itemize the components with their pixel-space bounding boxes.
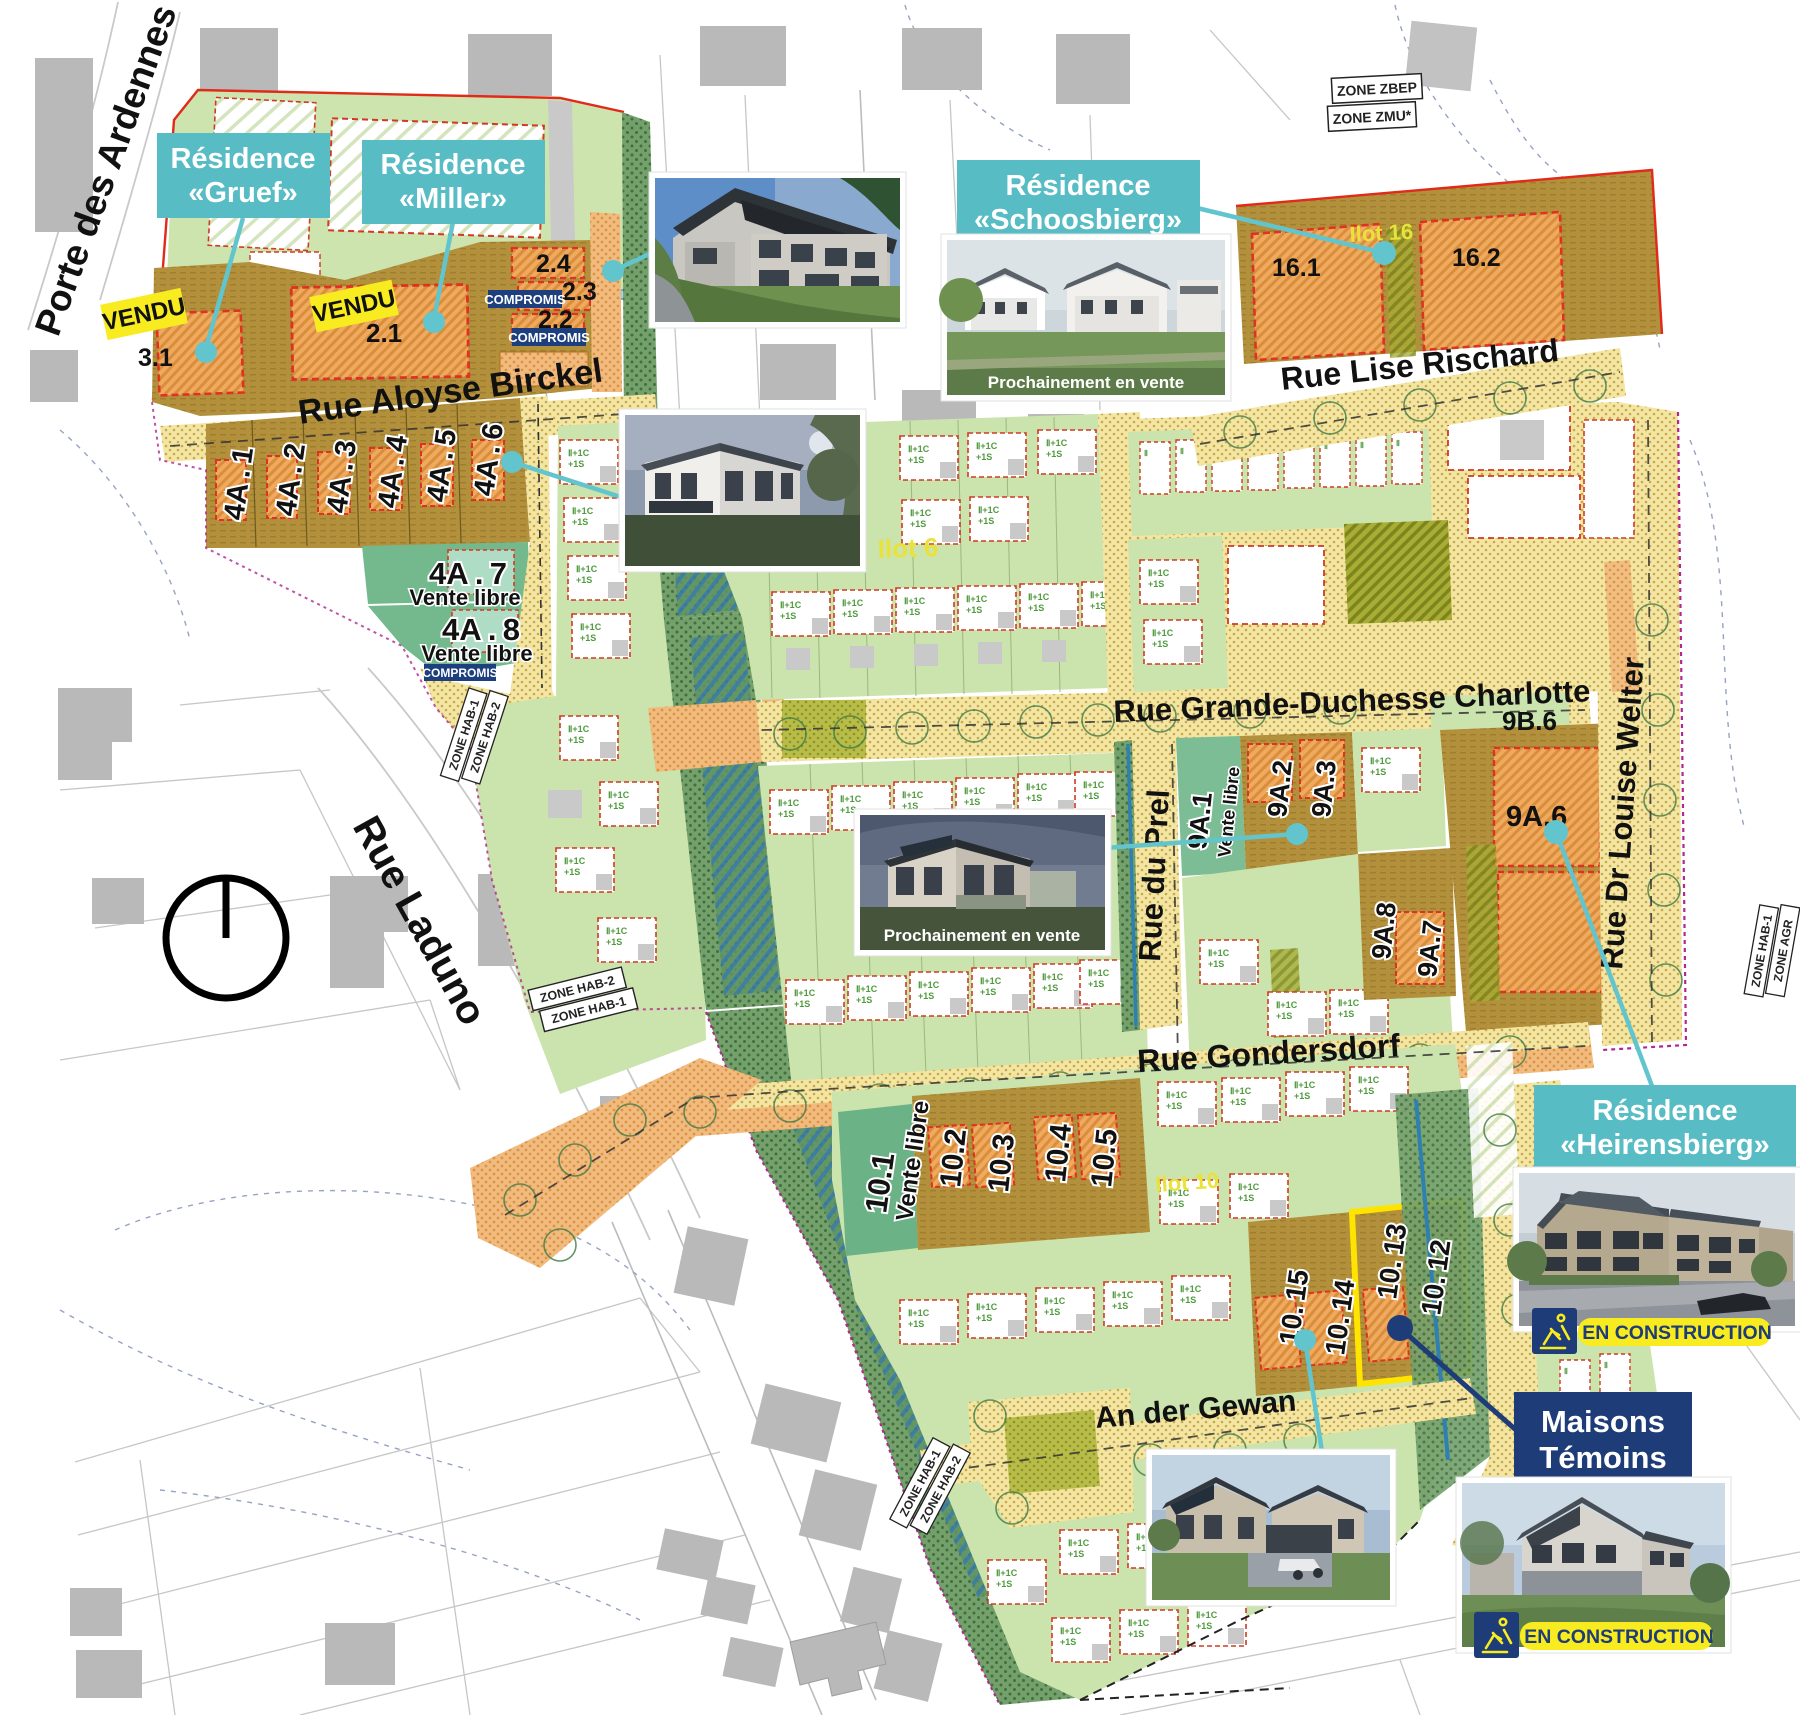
- svg-text:9A.8: 9A.8: [1366, 901, 1402, 961]
- svg-text:«Heirensbierg»: «Heirensbierg»: [1560, 1129, 1770, 1161]
- svg-text:10.5: 10.5: [1085, 1127, 1124, 1189]
- svg-text:«Miller»: «Miller»: [399, 183, 507, 215]
- svg-text:9A.7: 9A.7: [1412, 919, 1448, 979]
- svg-text:EN CONSTRUCTION: EN CONSTRUCTION: [1582, 1322, 1772, 1344]
- svg-text:3.1: 3.1: [138, 344, 173, 372]
- svg-text:9A.3: 9A.3: [1306, 759, 1342, 819]
- svg-text:9A.2: 9A.2: [1262, 759, 1298, 819]
- svg-text:Vente libre: Vente libre: [409, 585, 520, 610]
- svg-text:Résidence: Résidence: [1592, 1095, 1737, 1127]
- svg-text:COMPROMIS: COMPROMIS: [508, 330, 590, 345]
- svg-text:EN CONSTRUCTION: EN CONSTRUCTION: [1524, 1626, 1714, 1648]
- svg-text:16.1: 16.1: [1272, 254, 1321, 282]
- svg-text:Résidence: Résidence: [1005, 170, 1150, 202]
- svg-text:Prochainement en vente: Prochainement en vente: [884, 926, 1081, 945]
- svg-text:Témoins: Témoins: [1539, 1440, 1666, 1475]
- svg-text:Résidence: Résidence: [380, 149, 525, 181]
- svg-text:COMPROMIS: COMPROMIS: [422, 666, 497, 680]
- svg-text:«Schoosbierg»: «Schoosbierg»: [974, 204, 1182, 236]
- svg-text:Prochainement en vente: Prochainement en vente: [988, 373, 1185, 392]
- svg-text:16.2: 16.2: [1452, 244, 1501, 272]
- svg-text:COMPROMIS: COMPROMIS: [484, 292, 566, 307]
- svg-text:2.4: 2.4: [536, 250, 571, 278]
- svg-text:Maisons: Maisons: [1541, 1404, 1665, 1439]
- svg-text:Vente libre: Vente libre: [421, 641, 532, 666]
- svg-text:Ilot 6: Ilot 6: [877, 532, 939, 564]
- svg-text:10.4: 10.4: [1039, 1122, 1078, 1184]
- svg-text:10.3: 10.3: [982, 1132, 1021, 1194]
- svg-text:Ilot 10: Ilot 10: [1155, 1168, 1220, 1197]
- svg-text:2.3: 2.3: [562, 278, 597, 306]
- svg-text:10.2: 10.2: [934, 1127, 973, 1189]
- svg-text:Résidence: Résidence: [170, 143, 315, 175]
- svg-text:2.1: 2.1: [366, 318, 402, 348]
- svg-text:«Gruef»: «Gruef»: [188, 177, 298, 209]
- svg-text:9B.6: 9B.6: [1502, 706, 1557, 736]
